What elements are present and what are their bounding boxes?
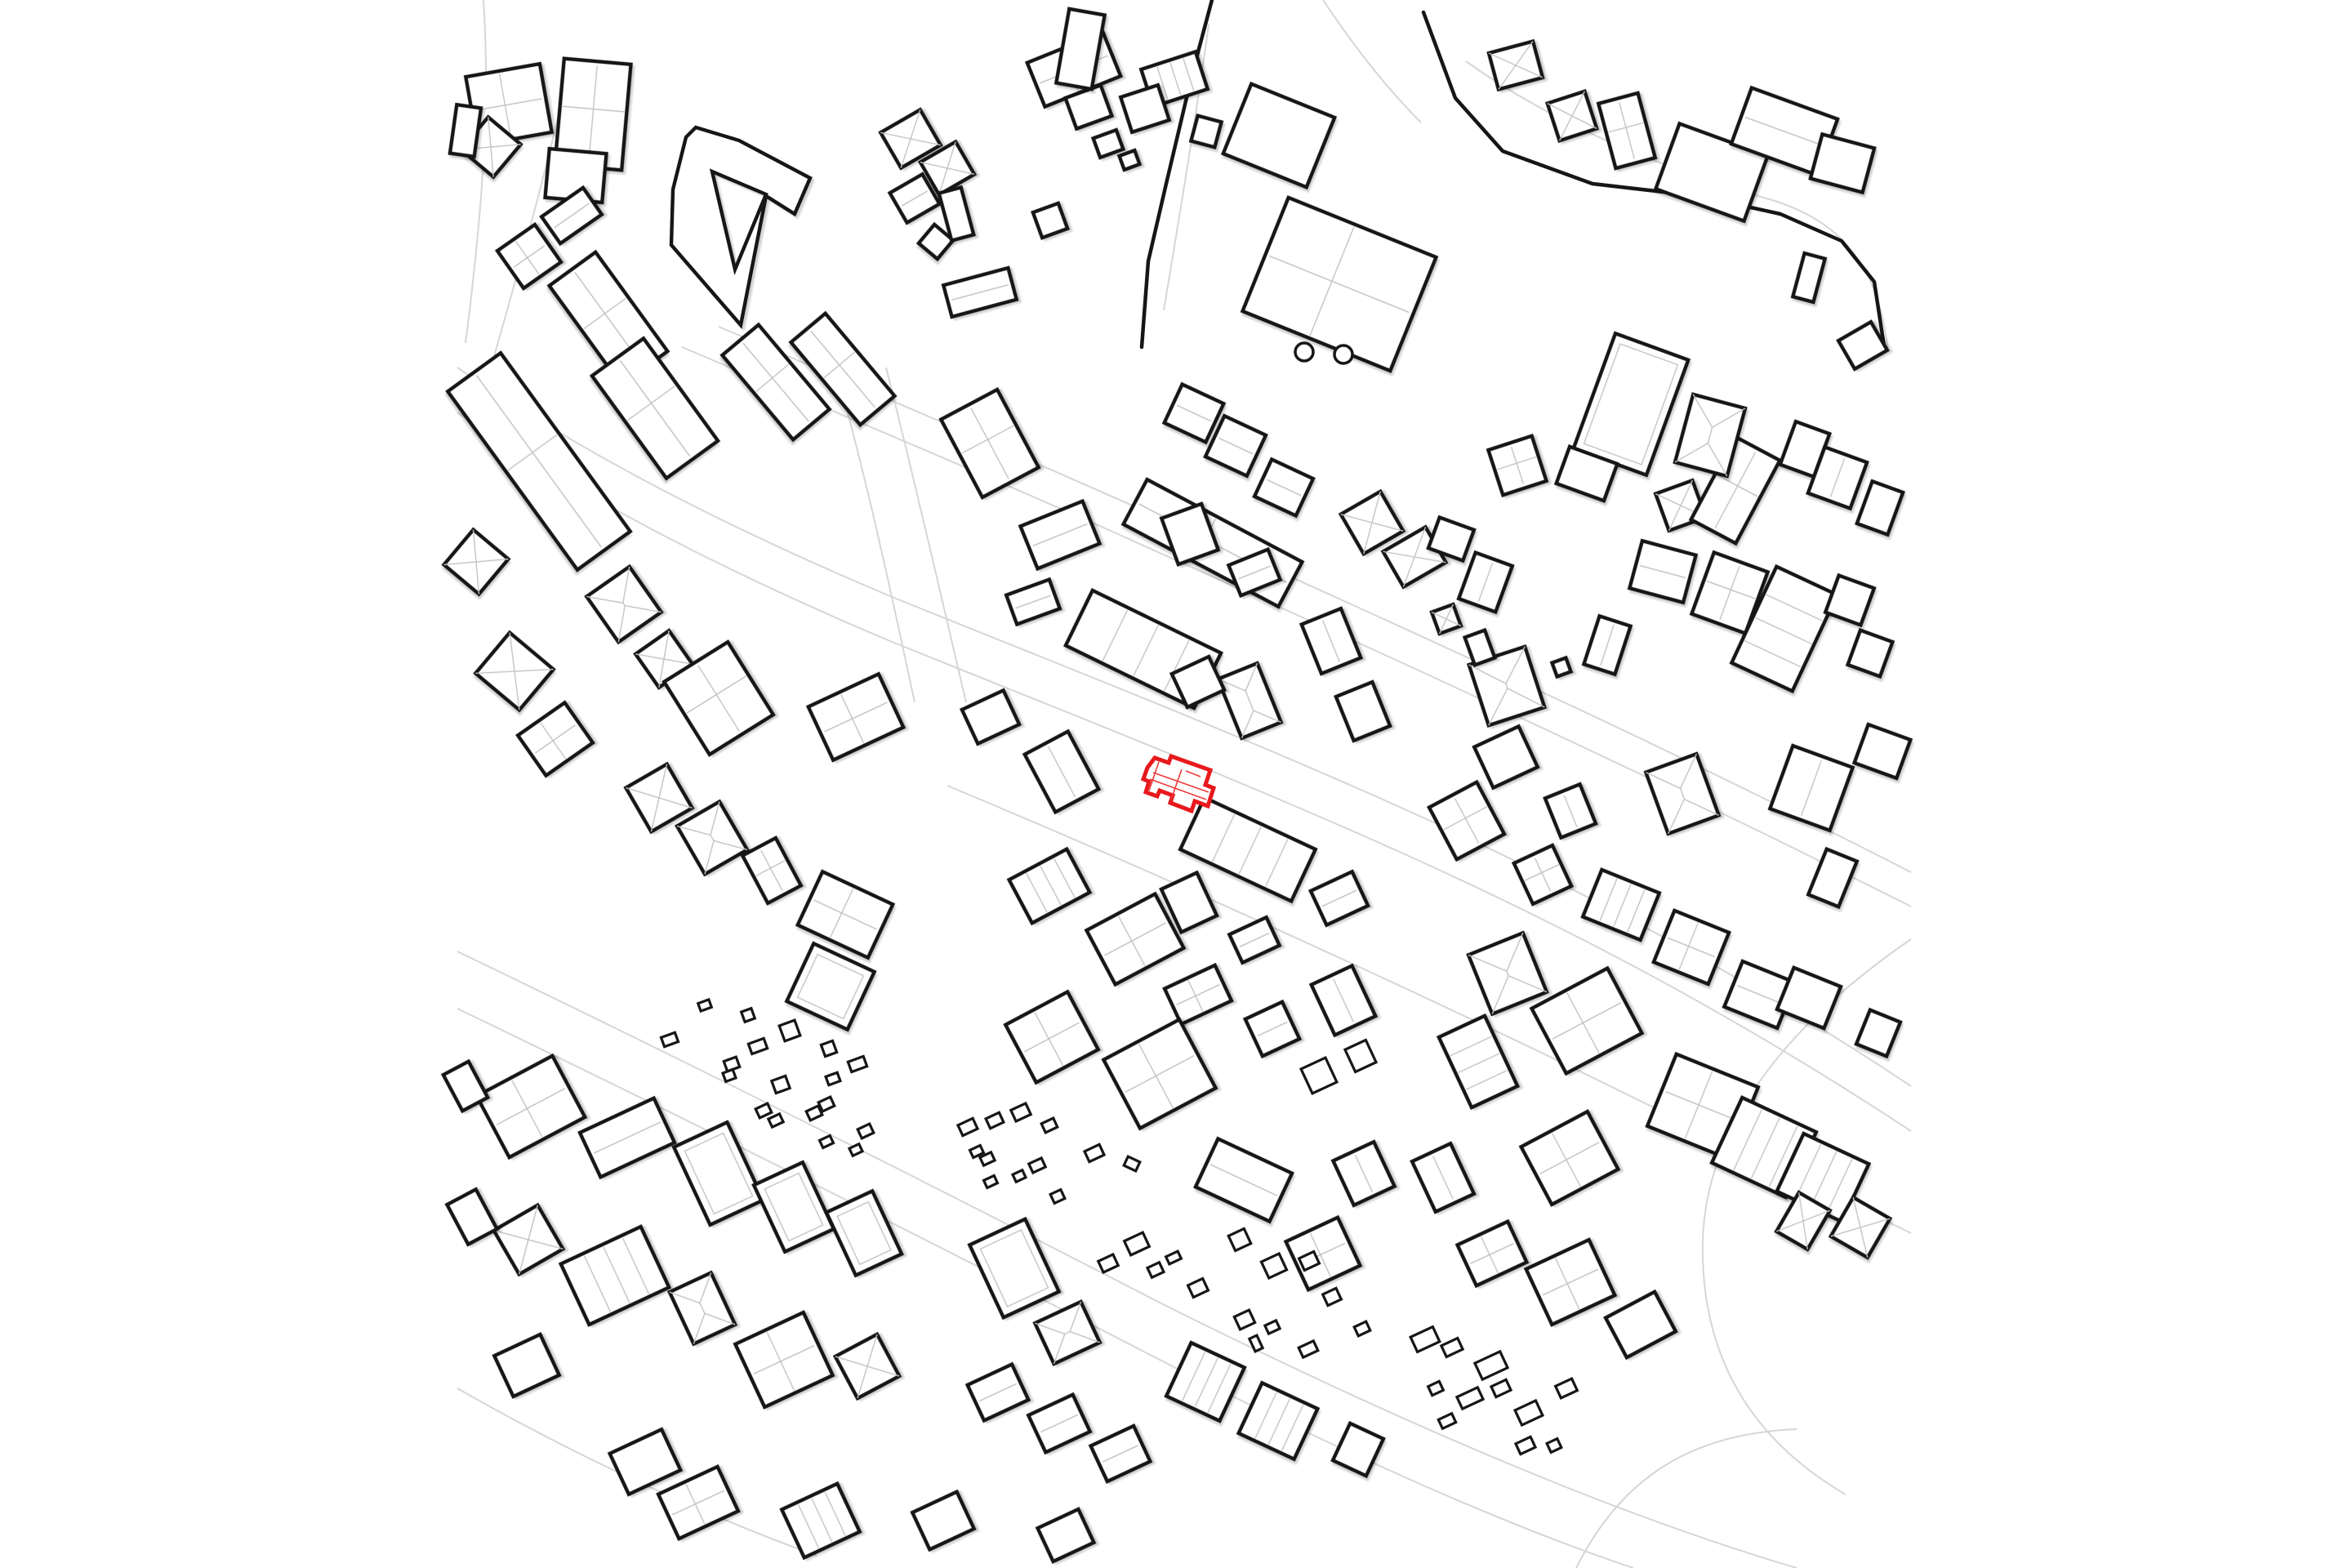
building-footprint [1311, 871, 1368, 924]
building-footprint [1629, 541, 1695, 603]
building-footprint [1191, 116, 1221, 148]
building-footprint [444, 530, 509, 595]
building-footprint [941, 390, 1039, 497]
building-footprint [1166, 1343, 1245, 1421]
building-footprint [1598, 93, 1655, 168]
building-footprint [1429, 782, 1504, 860]
building-footprint [1020, 501, 1099, 569]
building-footprint [1336, 682, 1390, 741]
building-footprint [1218, 663, 1281, 738]
building-footprint [477, 1056, 586, 1157]
shed-footprint [1410, 1327, 1440, 1352]
building-footprint [1770, 746, 1852, 831]
shed-footprint [1547, 1439, 1561, 1453]
shed-footprint [958, 1118, 978, 1135]
building-footprint [1005, 991, 1098, 1082]
building-footprint [1646, 754, 1718, 834]
shed-footprint [1354, 1321, 1370, 1336]
building-footprint [1848, 630, 1893, 677]
building-footprint [1038, 1509, 1094, 1561]
shed-footprint [1188, 1279, 1209, 1298]
building-footprint [1532, 969, 1642, 1074]
building-footprint [494, 1205, 563, 1275]
building-footprint [1025, 732, 1099, 813]
shed-footprint [768, 1114, 783, 1127]
building-footprint [1825, 576, 1874, 626]
shed-footprint [1516, 1437, 1535, 1454]
shed-footprint [742, 1009, 755, 1022]
building-footprint [518, 702, 593, 775]
building-footprint [1808, 849, 1857, 907]
tree-marker [1295, 343, 1313, 361]
shed-footprint [820, 1136, 834, 1148]
shed-footprint [1041, 1118, 1058, 1133]
building-footprint [1584, 616, 1630, 674]
building-footprint [497, 225, 561, 288]
shed-footprint [1265, 1321, 1280, 1334]
building-footprint [1120, 85, 1169, 132]
building-footprint [1488, 436, 1546, 495]
shed-footprint [1013, 1170, 1026, 1183]
shed-footprint [848, 1056, 866, 1071]
shed-footprint [1125, 1232, 1150, 1255]
building-footprint [742, 838, 801, 903]
building-footprint [1465, 630, 1495, 666]
building-footprint [1245, 1002, 1299, 1056]
building-footprint [1468, 933, 1547, 1013]
building-footprint [1526, 1240, 1615, 1325]
building-footprint [835, 1334, 899, 1398]
building-footprint [1459, 553, 1512, 612]
building-footprint [610, 1429, 681, 1494]
building-footprint [1489, 42, 1543, 90]
site-plan-page [0, 0, 2352, 1568]
shed-footprint [1011, 1103, 1031, 1121]
shed-footprint [1050, 1190, 1065, 1204]
building-footprint [586, 567, 661, 642]
shed-footprint [1029, 1158, 1045, 1173]
building-footprint [1254, 460, 1313, 516]
building-footprint [1654, 911, 1729, 984]
building-footprint [1229, 917, 1279, 963]
building-footprint [943, 268, 1017, 317]
building-footprint [1606, 1292, 1676, 1357]
shed-footprint [1124, 1156, 1140, 1171]
building-footprint [1474, 726, 1538, 787]
building-footprint [1333, 1423, 1383, 1476]
building-footprint [674, 1122, 764, 1225]
building-footprint [1286, 1218, 1361, 1290]
building-footprint [1514, 845, 1571, 904]
shed-footprint [1491, 1379, 1511, 1396]
building-footprint [447, 1189, 497, 1244]
shed-footprint [1298, 1341, 1318, 1357]
building-footprint [1777, 968, 1841, 1028]
shed-footprint [1441, 1339, 1463, 1357]
shed-footprint [1457, 1388, 1483, 1409]
building-footprint [1120, 150, 1140, 170]
shed-footprint [1085, 1144, 1104, 1161]
shed-footprint [1147, 1263, 1164, 1278]
building-footprint [1857, 481, 1903, 534]
shed-footprint [755, 1103, 772, 1118]
building-footprint [968, 1365, 1029, 1421]
shed-footprint [1249, 1335, 1263, 1352]
building-footprint [561, 1227, 670, 1325]
building-footprint [580, 1098, 675, 1178]
shed-footprint [1261, 1254, 1286, 1278]
building-footprint [1239, 1383, 1318, 1459]
shed-footprint [661, 1032, 678, 1046]
building-footprint-complex [671, 127, 810, 325]
building-footprint [912, 1492, 974, 1550]
building-footprint [450, 105, 481, 157]
building-footprint [969, 1219, 1058, 1318]
shed-footprint [723, 1070, 736, 1082]
shed-footprint [821, 1040, 836, 1056]
building-footprint [1243, 198, 1437, 371]
building-footprint [1521, 1111, 1619, 1205]
building-footprint [826, 1191, 902, 1275]
shed-footprint [857, 1124, 874, 1138]
building-footprint [1094, 130, 1124, 158]
building-footprint [1302, 608, 1361, 674]
shed-footprint [1323, 1288, 1342, 1305]
shed-footprint [1556, 1379, 1578, 1398]
building-footprint [1091, 1426, 1151, 1481]
building-footprint [808, 674, 904, 759]
shed-footprint [1438, 1414, 1455, 1428]
building-footprint [1033, 203, 1067, 238]
building-footprint [1223, 84, 1334, 188]
shed-footprint [698, 1000, 712, 1011]
building-footprint [1028, 1395, 1090, 1453]
shed-footprint [818, 1097, 835, 1111]
building-footprint [1432, 604, 1461, 634]
building-footprint [1855, 724, 1911, 778]
shed-footprint [779, 1020, 800, 1041]
building-footprint [735, 1312, 832, 1407]
building-footprint [754, 1162, 834, 1251]
building-footprint [658, 1467, 738, 1539]
shed-footprint [1166, 1251, 1182, 1264]
shed-footprint [984, 1176, 998, 1188]
shed-footprint [826, 1072, 840, 1085]
building-footprint [1545, 784, 1596, 837]
building-footprint [1412, 1143, 1474, 1212]
building-footprint [1103, 1019, 1215, 1128]
shed-footprint [1301, 1058, 1337, 1094]
shed-footprint [1515, 1401, 1543, 1425]
shed-footprint [1228, 1228, 1250, 1250]
building-footprint [1006, 580, 1060, 625]
building-footprint [670, 1272, 735, 1343]
building-footprint [1793, 253, 1824, 302]
shed-footprint [1234, 1310, 1254, 1330]
site-plan-map [0, 0, 2352, 1568]
building-footprint [475, 633, 553, 710]
building-footprint [1196, 1138, 1292, 1221]
building-footprint [1165, 965, 1232, 1024]
building-footprint [1811, 134, 1874, 192]
building-footprint [1009, 849, 1090, 924]
shed-footprint [772, 1076, 790, 1093]
shed-footprint [748, 1038, 767, 1053]
building-footprint [1552, 657, 1570, 676]
building-footprint [1458, 1222, 1527, 1286]
shed-footprint [1475, 1352, 1508, 1379]
building-footprint [1333, 1142, 1394, 1205]
tree-marker [1334, 345, 1352, 363]
highlighted-building [1143, 756, 1214, 811]
shed-footprint [1428, 1381, 1444, 1395]
building-footprint [1035, 1302, 1099, 1364]
shed-footprint [986, 1112, 1004, 1128]
building-footprint [1856, 1010, 1900, 1057]
shed-footprint [1098, 1254, 1118, 1272]
building-footprint [1312, 966, 1376, 1036]
shed-footprint [1345, 1040, 1376, 1071]
building-footprint [494, 1334, 559, 1396]
building-footprint [962, 690, 1019, 743]
building-footprint [1439, 1016, 1517, 1107]
